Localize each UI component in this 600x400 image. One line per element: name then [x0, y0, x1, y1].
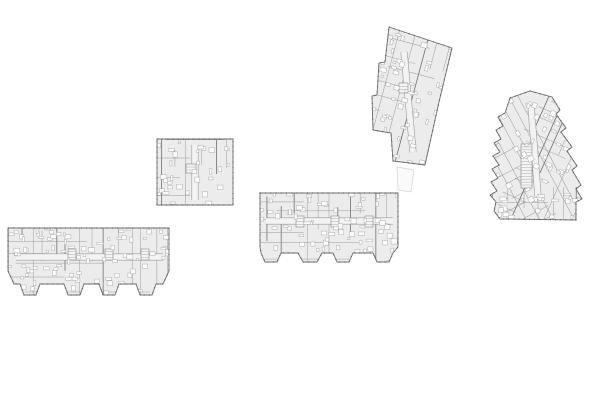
bar-northeast [325, 0, 509, 221]
slab-west [0, 211, 223, 320]
block-north [143, 123, 255, 231]
slab-center [228, 176, 437, 282]
floor-plan-canvas [0, 0, 600, 400]
link-annex [397, 167, 414, 192]
plan-sheet [0, 0, 600, 400]
point-block-east [440, 57, 600, 249]
